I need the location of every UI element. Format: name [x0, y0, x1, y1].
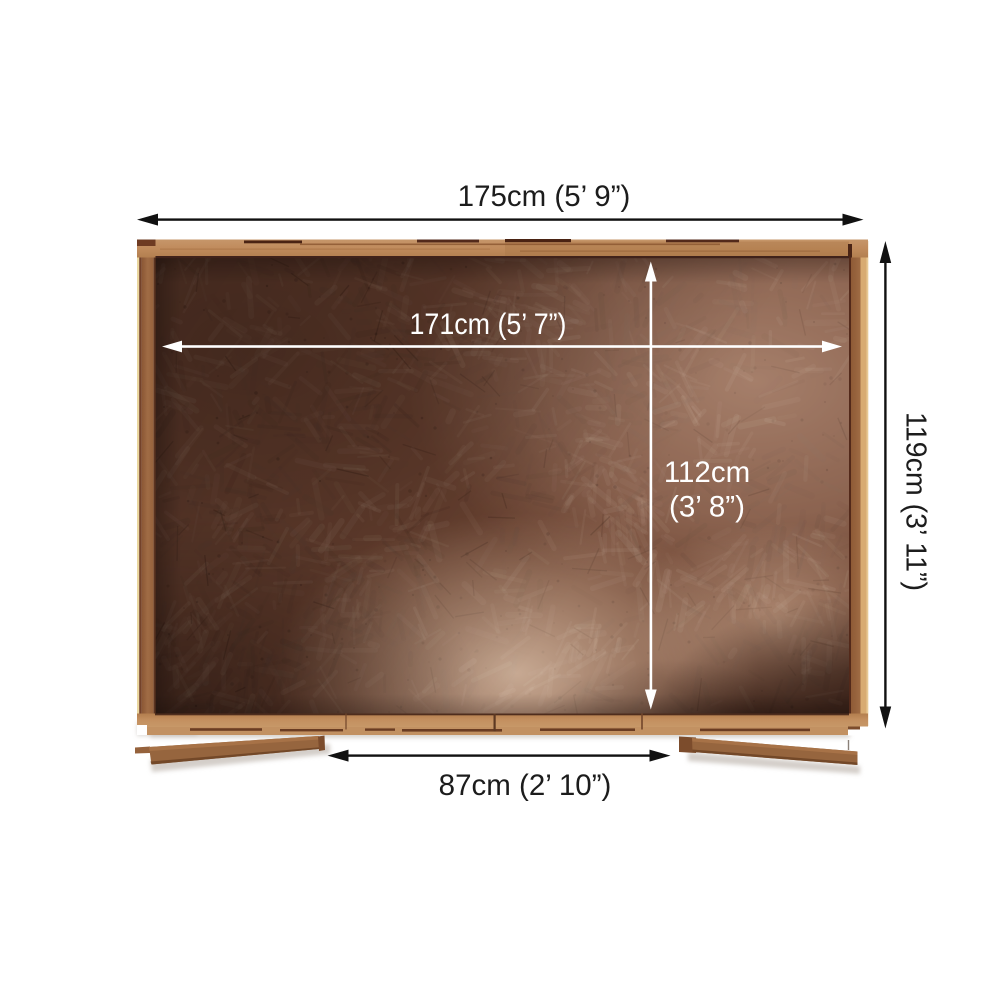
svg-text:171cm (5’ 7”): 171cm (5’ 7”)	[410, 308, 567, 341]
svg-text:(3’ 8”): (3’ 8”)	[669, 491, 745, 524]
svg-text:112cm: 112cm	[664, 456, 750, 489]
svg-text:87cm (2’ 10”): 87cm (2’ 10”)	[439, 769, 612, 802]
svg-text:119cm (3’ 11”): 119cm (3’ 11”)	[900, 412, 932, 591]
svg-text:175cm (5’ 9”): 175cm (5’ 9”)	[458, 180, 631, 213]
